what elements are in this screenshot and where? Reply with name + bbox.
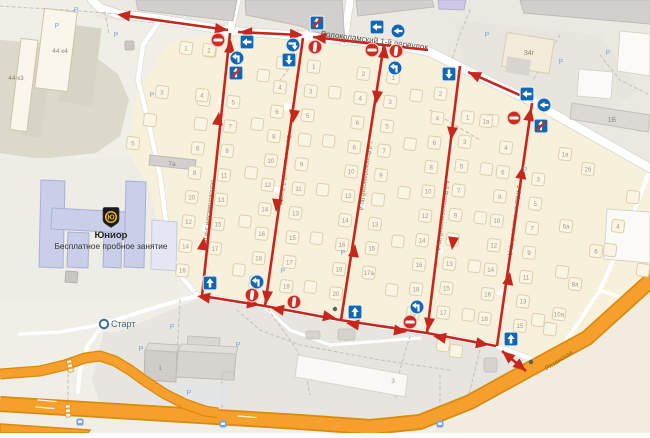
- svg-text:16: 16: [339, 242, 346, 249]
- svg-text:8: 8: [498, 194, 502, 201]
- svg-text:8: 8: [193, 170, 197, 177]
- svg-text:18: 18: [413, 286, 420, 293]
- svg-text:10: 10: [425, 189, 432, 196]
- svg-text:15: 15: [215, 221, 222, 228]
- svg-text:13: 13: [218, 197, 225, 204]
- svg-text:3: 3: [391, 378, 395, 385]
- svg-text:14: 14: [182, 243, 189, 250]
- svg-text:14: 14: [419, 238, 426, 245]
- svg-text:17: 17: [286, 259, 293, 266]
- svg-text:12: 12: [422, 213, 429, 220]
- svg-text:20: 20: [333, 291, 340, 298]
- svg-text:17: 17: [212, 246, 219, 253]
- svg-text:16: 16: [179, 268, 186, 275]
- svg-text:17а: 17а: [364, 270, 375, 277]
- svg-text:P: P: [139, 346, 144, 353]
- svg-text:4: 4: [359, 95, 363, 102]
- svg-text:P: P: [485, 32, 490, 39]
- svg-text:13: 13: [371, 221, 378, 228]
- svg-text:Юниор: Юниор: [95, 230, 128, 241]
- svg-text:P: P: [170, 324, 175, 331]
- svg-text:Ю: Ю: [107, 215, 114, 222]
- svg-text:14: 14: [342, 218, 349, 225]
- svg-text:Бесплатное пробное занятие: Бесплатное пробное занятие: [54, 241, 167, 251]
- svg-text:7: 7: [457, 188, 461, 195]
- svg-text:16: 16: [416, 262, 423, 269]
- svg-text:5: 5: [306, 113, 310, 120]
- svg-text:1а: 1а: [562, 151, 569, 158]
- svg-text:34г: 34г: [524, 50, 535, 57]
- svg-text:18: 18: [336, 266, 343, 273]
- svg-text:15: 15: [443, 286, 450, 293]
- svg-text:3: 3: [388, 99, 392, 106]
- svg-text:12: 12: [490, 243, 497, 250]
- svg-text:P: P: [187, 390, 192, 397]
- svg-text:P: P: [74, 7, 79, 14]
- svg-text:12: 12: [264, 182, 271, 189]
- svg-text:6а: 6а: [563, 223, 570, 230]
- svg-text:11: 11: [523, 274, 530, 281]
- svg-text:13: 13: [292, 210, 299, 217]
- svg-text:14: 14: [487, 267, 494, 274]
- svg-text:12: 12: [345, 193, 352, 200]
- svg-text:5: 5: [460, 163, 464, 170]
- svg-text:1Б: 1Б: [608, 117, 617, 124]
- svg-text:8а: 8а: [572, 281, 579, 288]
- svg-text:16: 16: [484, 291, 491, 298]
- svg-text:19: 19: [283, 284, 290, 291]
- svg-text:P: P: [559, 59, 564, 66]
- svg-text:18: 18: [481, 316, 488, 323]
- svg-text:P: P: [114, 32, 119, 39]
- svg-text:1а: 1а: [483, 118, 490, 125]
- svg-text:P: P: [523, 167, 528, 174]
- svg-text:14: 14: [261, 207, 268, 214]
- svg-text:P: P: [341, 250, 346, 257]
- svg-text:7а: 7а: [168, 161, 176, 168]
- svg-text:10а: 10а: [554, 311, 565, 318]
- svg-text:10: 10: [267, 158, 274, 165]
- svg-text:P: P: [606, 50, 611, 57]
- svg-text:P: P: [150, 92, 155, 99]
- svg-text:2: 2: [439, 91, 443, 98]
- svg-text:P: P: [236, 342, 241, 349]
- svg-text:7: 7: [530, 226, 534, 233]
- svg-text:11: 11: [221, 173, 228, 180]
- svg-text:16: 16: [258, 231, 265, 238]
- svg-text:17: 17: [440, 310, 447, 317]
- svg-text:Старт: Старт: [111, 319, 135, 329]
- svg-text:12: 12: [185, 219, 192, 226]
- svg-text:13: 13: [446, 261, 453, 268]
- svg-text:9: 9: [225, 148, 229, 155]
- svg-text:15: 15: [289, 235, 296, 242]
- svg-text:1: 1: [158, 365, 162, 372]
- svg-text:P: P: [55, 23, 60, 30]
- svg-text:6: 6: [196, 146, 200, 153]
- svg-text:8: 8: [272, 133, 276, 140]
- svg-text:15: 15: [368, 246, 375, 253]
- svg-text:18: 18: [255, 255, 262, 262]
- svg-text:5: 5: [385, 124, 389, 131]
- svg-text:4: 4: [436, 115, 440, 122]
- svg-text:5: 5: [533, 201, 537, 208]
- svg-text:44 к4: 44 к4: [52, 48, 68, 55]
- svg-text:10: 10: [493, 218, 500, 225]
- svg-text:2б: 2б: [585, 166, 592, 173]
- svg-text:10: 10: [188, 194, 195, 201]
- svg-text:13: 13: [520, 299, 527, 306]
- svg-text:10: 10: [348, 169, 355, 176]
- svg-text:6: 6: [501, 169, 505, 176]
- svg-text:15: 15: [517, 323, 524, 330]
- svg-text:P: P: [281, 268, 286, 275]
- svg-text:44 к3: 44 к3: [8, 75, 24, 82]
- svg-text:2: 2: [362, 71, 366, 78]
- svg-text:11: 11: [295, 186, 302, 193]
